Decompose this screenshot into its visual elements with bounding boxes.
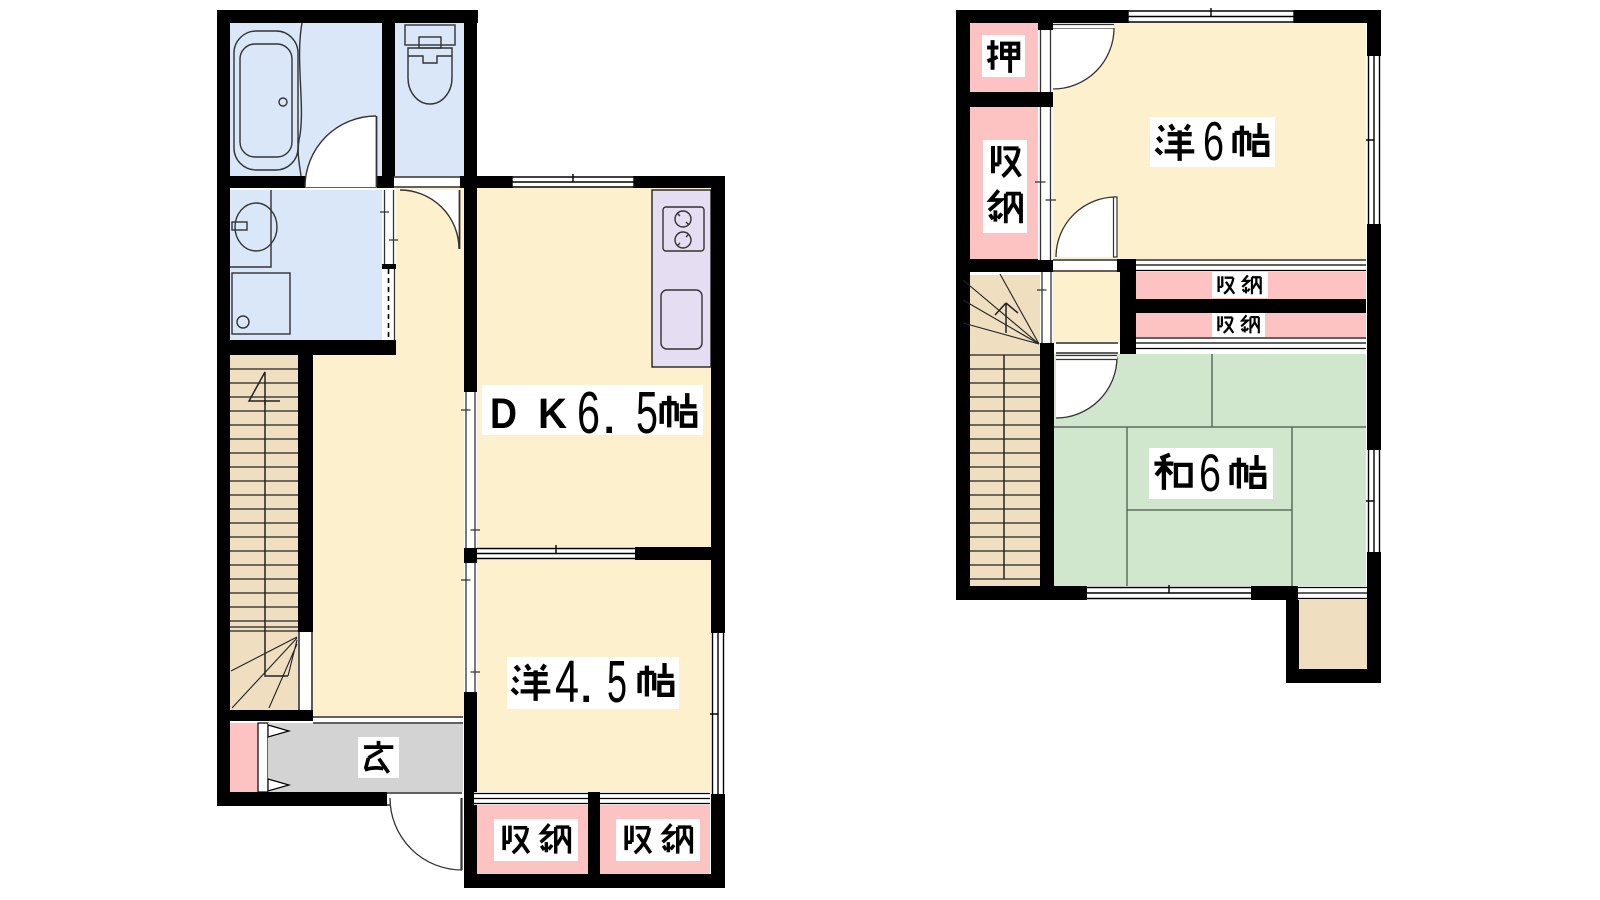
svg-text:5: 5 (607, 649, 627, 715)
svg-text:4: 4 (555, 649, 579, 715)
svg-text:D: D (490, 390, 517, 438)
svg-text:5: 5 (636, 380, 658, 446)
svg-text:K: K (538, 390, 567, 438)
svg-text:6: 6 (1199, 444, 1221, 503)
svg-text:.: . (578, 649, 594, 715)
svg-text:6: 6 (577, 380, 600, 446)
svg-text:6: 6 (1203, 110, 1224, 172)
svg-text:.: . (601, 380, 617, 446)
